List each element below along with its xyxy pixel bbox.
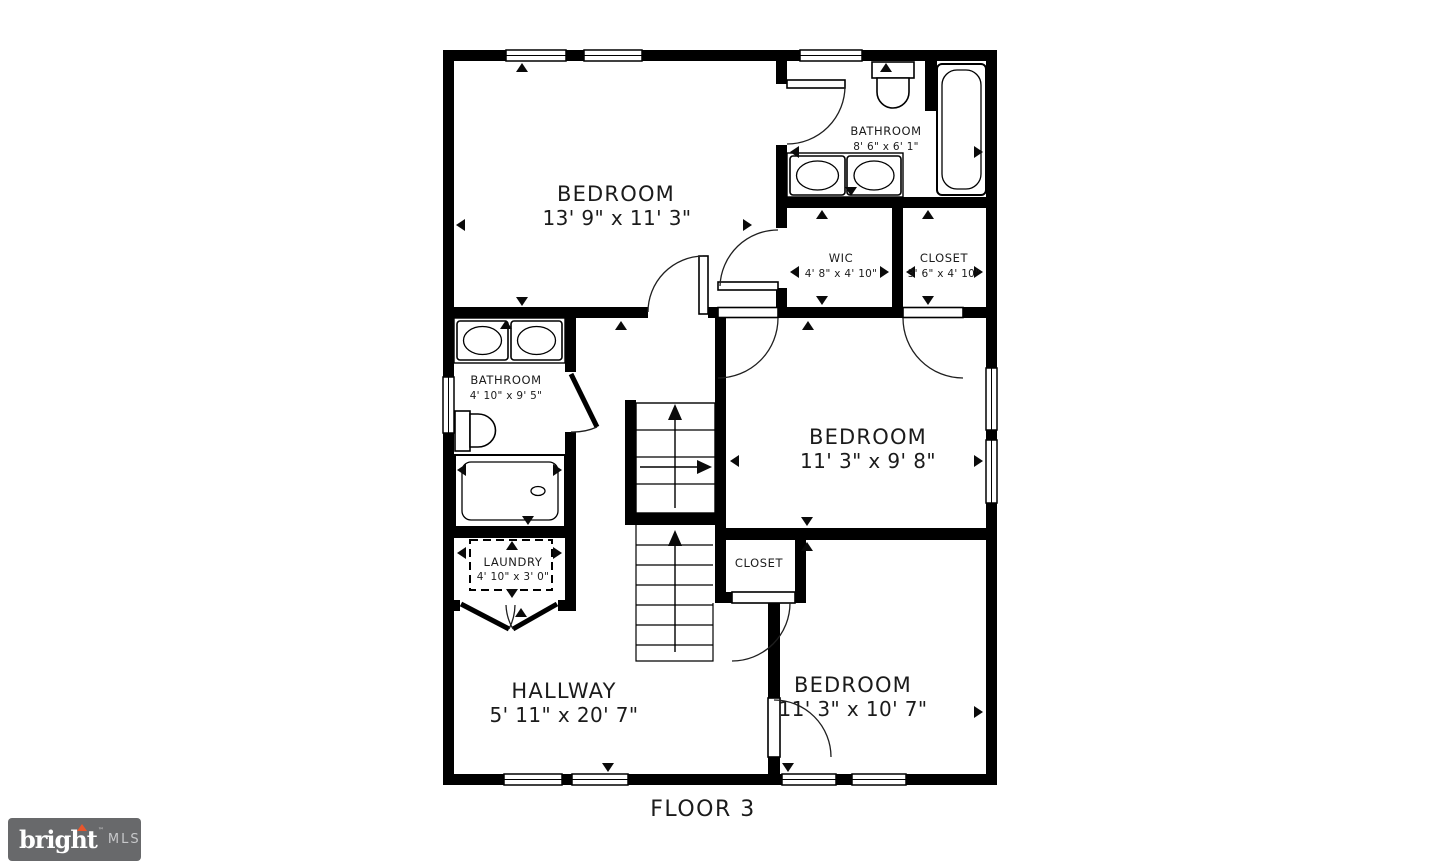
dim-arrow [506,589,518,598]
door-opening [776,84,787,145]
dim-arrow [974,455,983,467]
dim-arrow [922,210,934,219]
room-name-label: CLOSET [920,251,969,265]
toilet-tank [872,62,914,78]
room-name-label: HALLWAY [511,679,616,703]
logo-suffix-text: MLS [108,832,141,847]
wall [625,513,726,525]
room-name-label: LAUNDRY [484,555,543,569]
wall [443,527,576,538]
wall [892,208,903,307]
door-swing-arc [648,256,703,312]
room-dims-label: 5' 11" x 20' 7" [489,703,638,727]
room-name-label: BATHROOM [470,373,541,387]
dim-arrow [506,541,518,550]
door-leaf [699,256,708,314]
dim-arrow [922,296,934,305]
logo-trademark: ™ [98,827,104,834]
logo-caret-icon [77,824,87,831]
dim-arrow [553,547,562,559]
dim-arrow [802,321,814,330]
toilet-tank [455,411,470,451]
door-swing-arc [787,86,845,144]
logo-brand-text: bright [19,828,97,852]
dim-arrow [880,266,889,278]
dim-arrow [730,455,739,467]
wall [776,197,997,208]
room-name-label: WIC [829,251,854,265]
door-swing-arc [903,318,963,378]
bathtub [937,64,986,195]
door-leaf [903,308,963,318]
shower [455,455,565,527]
staircase [636,403,715,661]
walls [443,50,997,785]
dim-arrow [782,763,794,772]
wall-stub [925,61,937,111]
dim-arrow [602,763,614,772]
door-swing-arc [718,318,778,378]
arrow-head-icon [668,530,682,546]
dim-arrow [615,321,627,330]
room-dims-label: 4' 10" x 9' 5" [470,390,543,402]
room-name-label: BEDROOM [809,425,927,449]
wall [715,318,726,603]
door-swing-arc [720,230,778,286]
wall [795,528,806,603]
room-name-label: BEDROOM [794,673,912,697]
room-name-label: BEDROOM [557,182,675,206]
floor-plan: BEDROOM 13' 9" x 11' 3" BATHROOM 8' 6" x… [0,0,1440,861]
room-dims-label: 3' 6" x 4' 10" [908,268,981,280]
sink [790,156,845,195]
wall [625,400,636,525]
door-leaf [732,592,795,603]
room-dims-label: 11' 3" x 10' 7" [778,697,927,721]
toilet-bowl [877,78,909,108]
room-dims-label: 4' 10" x 3' 0" [477,571,550,583]
door-opening [776,228,787,288]
dim-arrow [516,63,528,72]
room-dims-label: 4' 8" x 4' 10" [805,268,878,280]
door-leaf [718,282,778,290]
dim-arrow [801,517,813,526]
dim-arrow [816,210,828,219]
room-dims-label: 8' 6" x 6' 1" [853,141,919,153]
dim-arrow [456,219,465,231]
wall [565,318,576,610]
dim-arrow [790,266,799,278]
dim-arrow [974,706,983,718]
room-name-label: BATHROOM [850,124,921,138]
brightmls-logo: bright ™ MLS [8,818,141,861]
room-dims-label: 11' 3" x 9' 8" [800,449,936,473]
room-dims-label: 13' 9" x 11' 3" [542,206,691,230]
floor-plan-page: BEDROOM 13' 9" x 11' 3" BATHROOM 8' 6" x… [0,0,1440,861]
floor-caption: FLOOR 3 [650,797,756,822]
room-name-label: CLOSET [735,556,784,570]
dim-arrow [457,547,466,559]
dim-arrow [516,297,528,306]
door-leaf [787,80,845,88]
door-leaf [718,308,778,318]
toilet-bowl [470,414,496,447]
wall [715,528,997,540]
dim-arrow [816,296,828,305]
door-swing-arc [732,603,790,661]
dim-arrow [743,219,752,231]
